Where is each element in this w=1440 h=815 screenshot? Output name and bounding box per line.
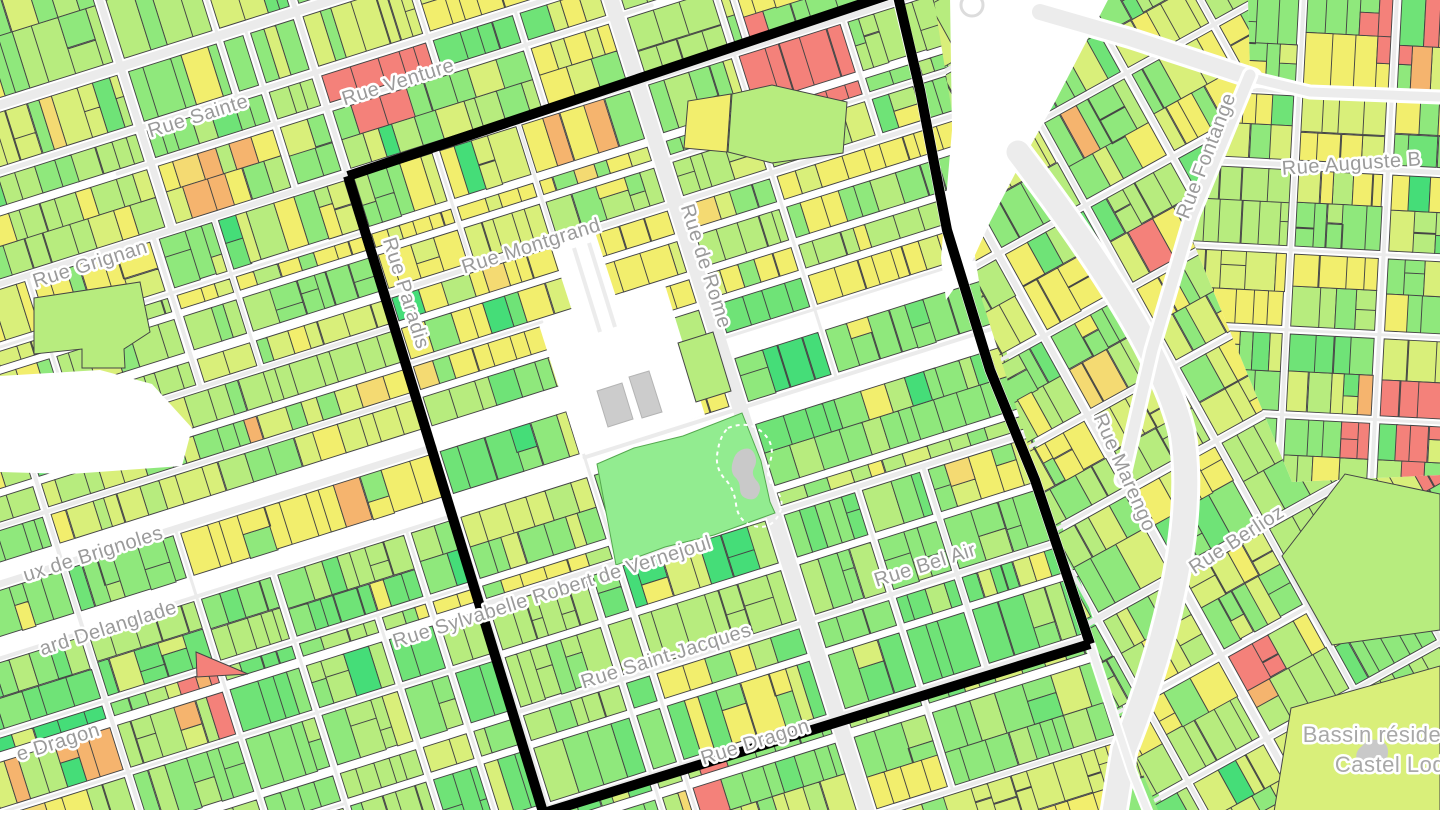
svg-text:Castel Lod: Castel Lod	[1335, 752, 1440, 777]
svg-text:Bassin réside: Bassin réside	[1303, 722, 1440, 747]
